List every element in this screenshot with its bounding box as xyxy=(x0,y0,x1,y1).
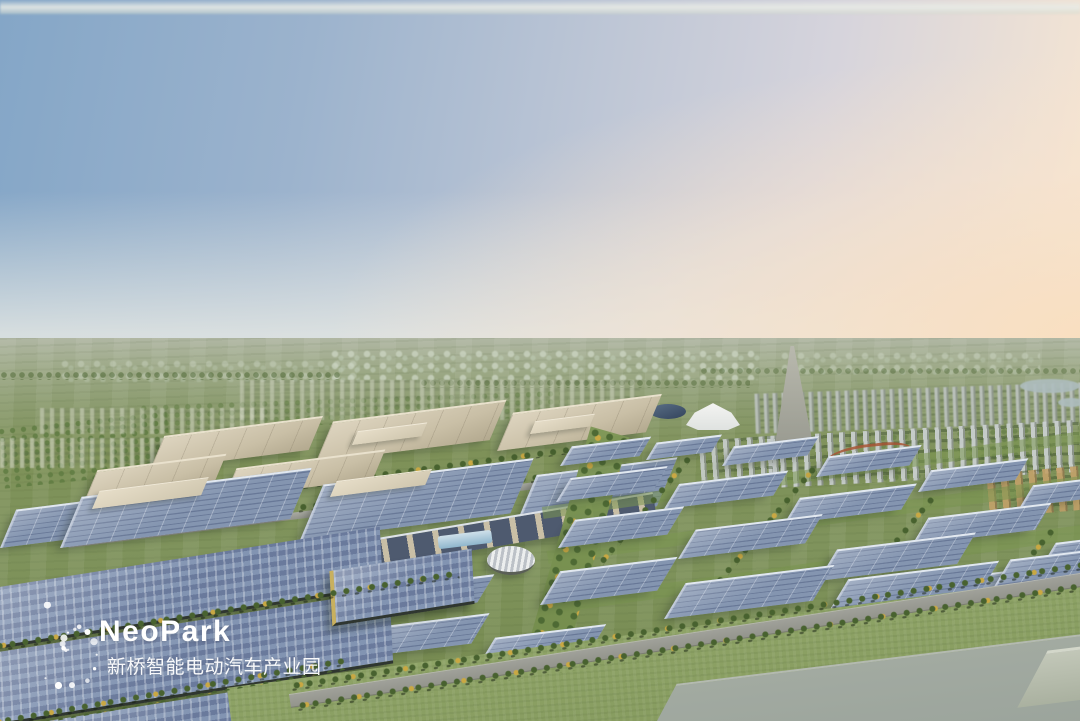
dome-building xyxy=(487,546,535,575)
lake xyxy=(1020,379,1080,393)
aerial-industrial-park-render: NeoPark 新桥智能电动汽车产业园 xyxy=(0,0,1080,721)
horizon-haze xyxy=(0,0,1080,14)
distant-light-trees xyxy=(330,350,760,380)
sky-gradient xyxy=(0,0,1080,348)
brand-watermark: NeoPark xyxy=(99,615,231,649)
distant-tree-band xyxy=(700,368,1080,375)
lake xyxy=(1058,398,1080,407)
brand-subtitle-watermark: 新桥智能电动汽车产业园 xyxy=(107,652,322,679)
distant-tree-band xyxy=(0,372,340,380)
